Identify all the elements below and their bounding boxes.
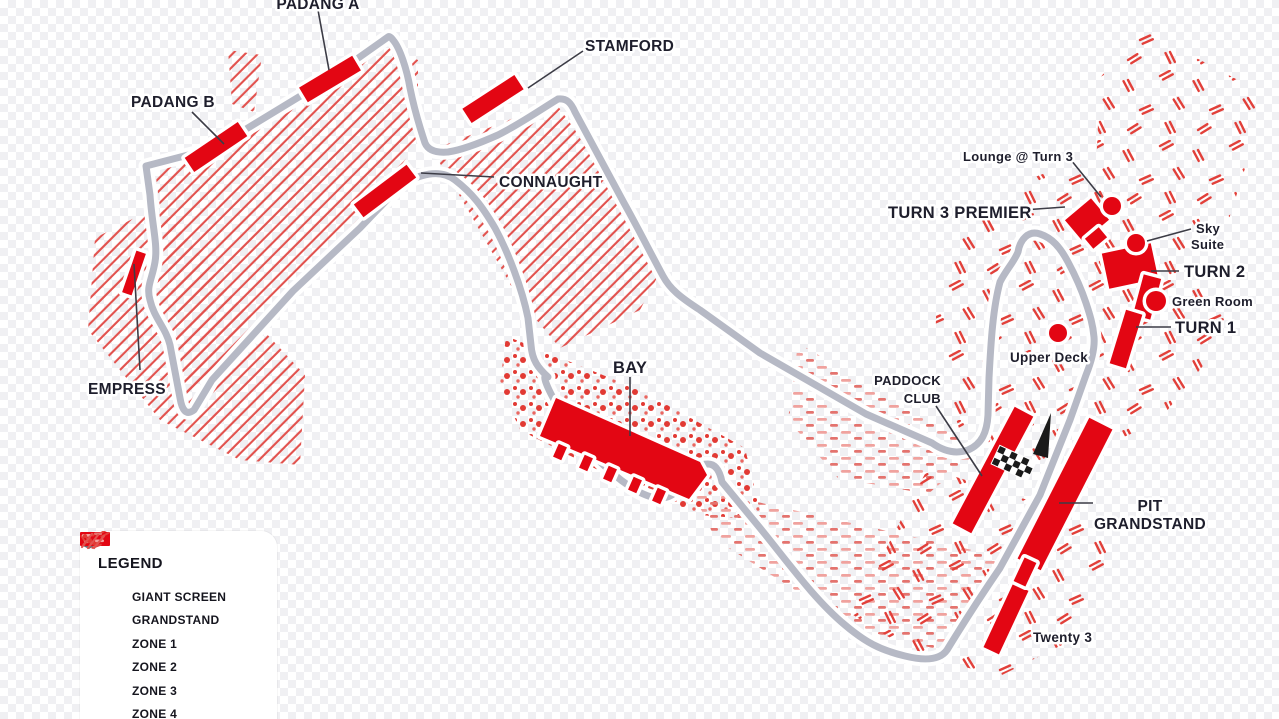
label-green-room: Green Room (1172, 294, 1253, 309)
label-paddock-club-line2: CLUB (904, 391, 941, 406)
circuit-map: PADANG A PADANG B STAMFORD CONNAUGHT EMP… (0, 0, 1279, 719)
lounge-at-turn3-marker (1103, 197, 1121, 215)
label-padang-a: PADANG A (276, 0, 359, 13)
label-empress: EMPRESS (88, 381, 166, 398)
label-turn2: TURN 2 (1184, 263, 1245, 281)
label-lounge-turn3: Lounge @ Turn 3 (963, 149, 1073, 164)
label-padang-b: PADANG B (131, 94, 215, 111)
legend-item-label: GIANT SCREEN (132, 590, 226, 604)
label-pit-grandstand-line1: PIT (1137, 498, 1162, 515)
legend-item-label: ZONE 2 (132, 660, 177, 674)
legend-item-grandstand: GRANDSTAND (98, 609, 277, 633)
label-turn3-premier: TURN 3 PREMIER (888, 204, 1032, 222)
legend-item-label: ZONE 4 (132, 707, 177, 719)
legend-item-zone1: ZONE 1 (98, 632, 277, 656)
grandstand-stamford (462, 75, 523, 123)
legend-item-zone4: ZONE 4 (98, 703, 277, 719)
legend-item-label: ZONE 1 (132, 637, 177, 651)
legend-item-zone3: ZONE 3 (98, 679, 277, 703)
label-twenty3: Twenty 3 (1033, 630, 1092, 645)
legend-item-label: GRANDSTAND (132, 613, 219, 627)
legend-card: LEGEND GIANT SCREEN GRANDSTAND ZONE (80, 531, 277, 719)
upper-deck-marker (1049, 324, 1067, 342)
legend-title: LEGEND (98, 555, 277, 572)
label-turn1: TURN 1 (1175, 319, 1236, 337)
legend-item-zone2: ZONE 2 (98, 656, 277, 680)
legend-item-giant-screen: GIANT SCREEN (98, 585, 277, 609)
green-room-marker (1146, 291, 1166, 311)
legend-item-label: ZONE 3 (132, 684, 177, 698)
label-sky-suite-line1: Sky (1196, 221, 1221, 236)
label-paddock-club-line1: PADDOCK (874, 373, 941, 388)
label-stamford: STAMFORD (585, 38, 674, 55)
sky-suite-marker (1127, 234, 1145, 252)
label-connaught: CONNAUGHT (499, 174, 603, 191)
label-bay: BAY (613, 359, 647, 377)
label-sky-suite-line2: Suite (1191, 237, 1224, 252)
label-upper-deck: Upper Deck (1010, 350, 1088, 365)
label-pit-grandstand-line2: GRANDSTAND (1094, 516, 1206, 533)
